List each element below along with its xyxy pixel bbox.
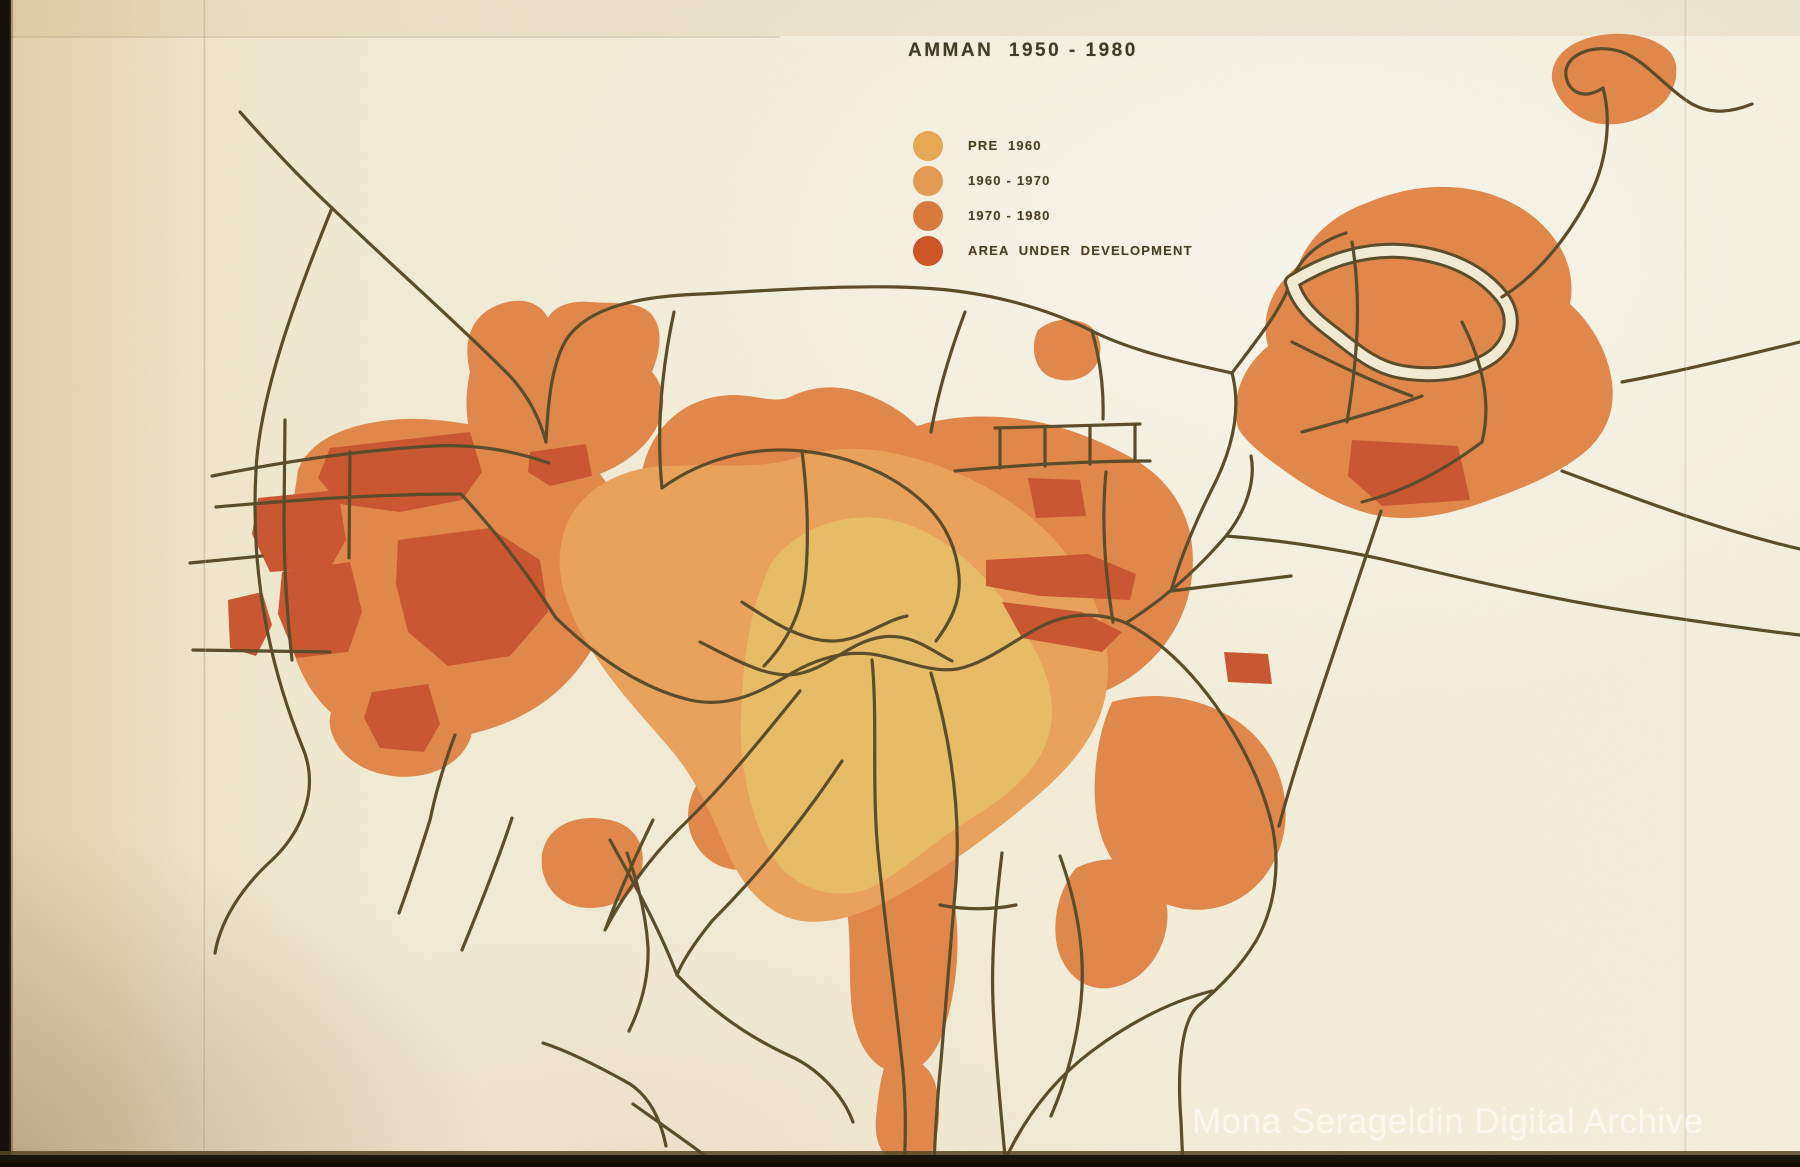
amman-growth-map xyxy=(0,0,1800,1167)
legend-label-pre-1960: PRE 1960 xyxy=(968,138,1042,153)
legend-item-1960-1970: 1960 - 1970 xyxy=(913,165,1193,196)
legend-label-area-under-development: AREA UNDER DEVELOPMENT xyxy=(968,243,1193,258)
road-segment xyxy=(193,650,330,652)
urban-area-blob xyxy=(1055,859,1167,988)
road-segment xyxy=(462,818,512,950)
legend-swatch-1970-1980 xyxy=(913,201,943,231)
road-segment xyxy=(543,1043,666,1146)
road-segment xyxy=(1226,536,1800,635)
paper-top-band xyxy=(0,0,1800,36)
legend-item-1970-1980: 1970 - 1980 xyxy=(913,200,1193,231)
legend-item-area-under-development: AREA UNDER DEVELOPMENT xyxy=(913,235,1193,266)
legend: PRE 1960 1960 - 1970 1970 - 1980 AREA UN… xyxy=(913,130,1193,266)
road-segment xyxy=(1562,471,1800,549)
road-segment xyxy=(240,112,332,208)
paper-crease-top xyxy=(0,36,780,38)
legend-label-1960-1970: 1960 - 1970 xyxy=(968,173,1051,188)
road-segment xyxy=(1622,342,1800,382)
dev-area-patch xyxy=(1028,478,1086,518)
legend-swatch-1960-1970 xyxy=(913,166,943,196)
slide-frame-bottom-edge xyxy=(0,1151,1800,1167)
slide-amman-growth-map: AMMAN 1950 - 1980 PRE 1960 1960 - 1970 1… xyxy=(0,0,1800,1167)
road-segment xyxy=(677,975,853,1122)
paper-crease-right xyxy=(1684,0,1687,1167)
road-segment xyxy=(993,853,1006,1167)
road-segment xyxy=(349,452,350,558)
road-segment xyxy=(1279,511,1381,826)
legend-swatch-area-under-development xyxy=(913,236,943,266)
legend-label-1970-1980: 1970 - 1980 xyxy=(968,208,1051,223)
urban-area-blob xyxy=(1552,34,1677,125)
legend-item-pre-1960: PRE 1960 xyxy=(913,130,1193,161)
road-segment xyxy=(931,312,965,432)
dev-area-patch xyxy=(1224,652,1272,684)
archive-watermark: Mona Serageldin Digital Archive xyxy=(1192,1102,1704,1142)
road-segment xyxy=(940,905,1016,909)
slide-frame-left-edge xyxy=(0,0,13,1167)
map-title: AMMAN 1950 - 1980 xyxy=(908,40,1138,62)
road-segment xyxy=(190,556,262,563)
paper-crease-left xyxy=(203,0,206,1167)
legend-swatch-pre-1960 xyxy=(913,131,943,161)
